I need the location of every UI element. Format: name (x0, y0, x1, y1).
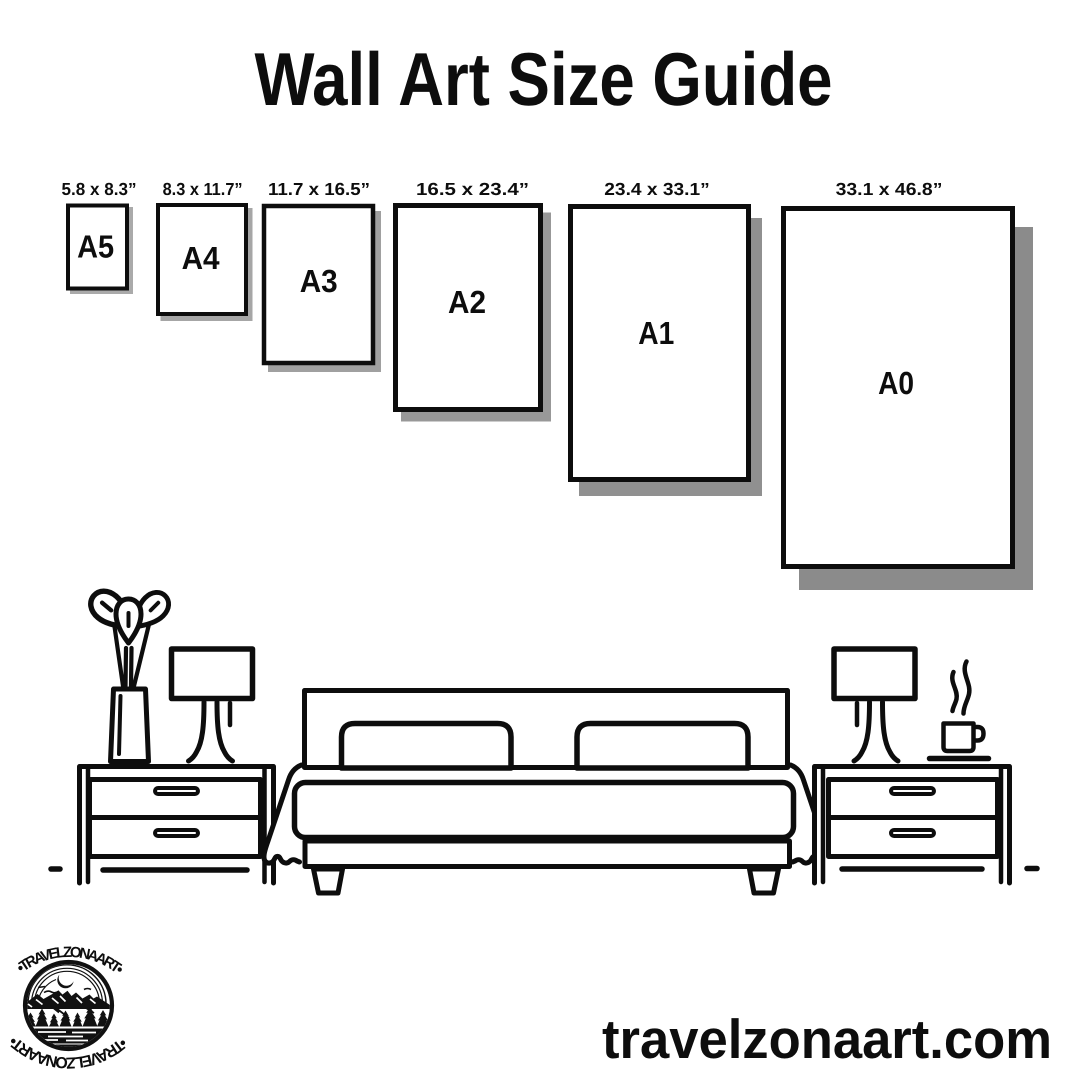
svg-text:5.8 x 8.3”: 5.8 x 8.3” (62, 179, 137, 199)
svg-text:16.5 x 23.4”: 16.5 x 23.4” (416, 179, 529, 199)
svg-text:8.3 x 11.7”: 8.3 x 11.7” (163, 179, 243, 199)
svg-text:33.1 x 46.8”: 33.1 x 46.8” (836, 179, 943, 199)
svg-text:A5: A5 (77, 229, 114, 265)
svg-text:Wall Art Size Guide: Wall Art Size Guide (255, 37, 833, 121)
svg-text:A1: A1 (638, 315, 674, 351)
svg-text:travelzonaart.com: travelzonaart.com (602, 1008, 1052, 1070)
svg-text:A0: A0 (878, 365, 914, 401)
svg-text:23.4 x 33.1”: 23.4 x 33.1” (604, 179, 710, 199)
svg-text:11.7 x 16.5”: 11.7 x 16.5” (268, 179, 370, 199)
svg-text:A3: A3 (300, 263, 338, 299)
svg-text:A2: A2 (448, 284, 486, 320)
svg-text:A4: A4 (182, 240, 220, 276)
